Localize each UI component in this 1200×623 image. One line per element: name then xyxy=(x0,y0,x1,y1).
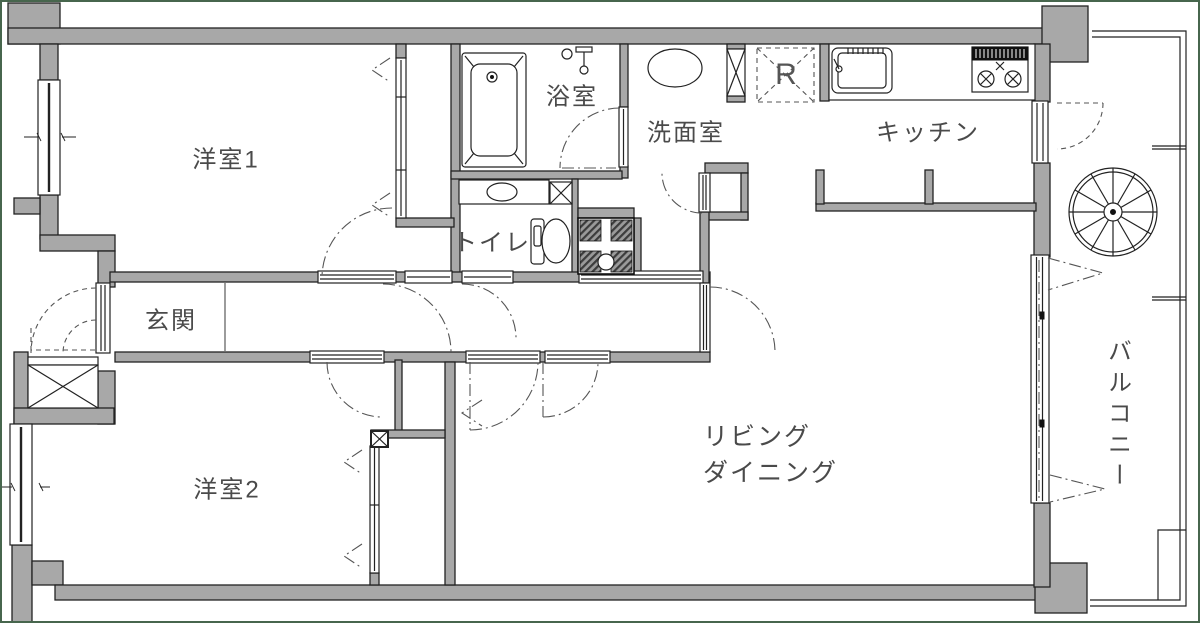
room-label-bathroom: 浴室 xyxy=(546,77,598,112)
living-dining-line-2: ダイニング xyxy=(703,455,838,491)
kitchen-sink xyxy=(832,48,892,93)
balcony-kitchen-door xyxy=(1032,101,1048,163)
shaft-box xyxy=(727,49,745,96)
room-label-western-room-1: 洋室1 xyxy=(192,140,259,175)
shower-faucet-icon xyxy=(562,47,592,74)
toilet-shaft-box xyxy=(550,182,572,204)
wash-basin xyxy=(648,49,702,87)
pipe-shaft xyxy=(578,218,634,274)
floor-plan: 洋室1 浴室 洗面室 キッチン R トイレ 玄関 洋室2 リビング ダイニング … xyxy=(0,0,1200,623)
spiral-staircase-icon xyxy=(1069,168,1157,256)
room1-sliding-partition xyxy=(396,58,406,218)
room2-sliding-partition xyxy=(370,446,379,573)
room-label-kitchen: キッチン xyxy=(876,113,980,148)
gas-stove xyxy=(972,47,1028,92)
room-label-toilet: トイレ xyxy=(453,223,531,258)
living-balcony-window xyxy=(1031,255,1049,503)
room-label-entrance: 玄関 xyxy=(145,301,197,336)
room-label-western-room-2: 洋室2 xyxy=(193,470,260,505)
washroom-kitchen-door xyxy=(699,173,710,212)
closet-box xyxy=(371,431,388,447)
balcony-outline xyxy=(1090,31,1186,606)
living-dining-line-1: リビング xyxy=(703,419,838,455)
room-label-living-dining: リビング ダイニング xyxy=(703,419,838,492)
entrance-door xyxy=(96,283,110,353)
bathtub xyxy=(462,53,526,167)
living-door xyxy=(700,283,710,352)
bath-door xyxy=(619,107,628,167)
meter-box xyxy=(28,357,98,408)
toilet-fixture xyxy=(531,219,570,264)
toilet-hand-basin xyxy=(459,180,549,204)
room-label-washroom: 洗面室 xyxy=(647,113,725,148)
room-label-balcony: バルコニー xyxy=(1100,339,1135,494)
refrigerator-mark-label: R xyxy=(775,58,797,92)
